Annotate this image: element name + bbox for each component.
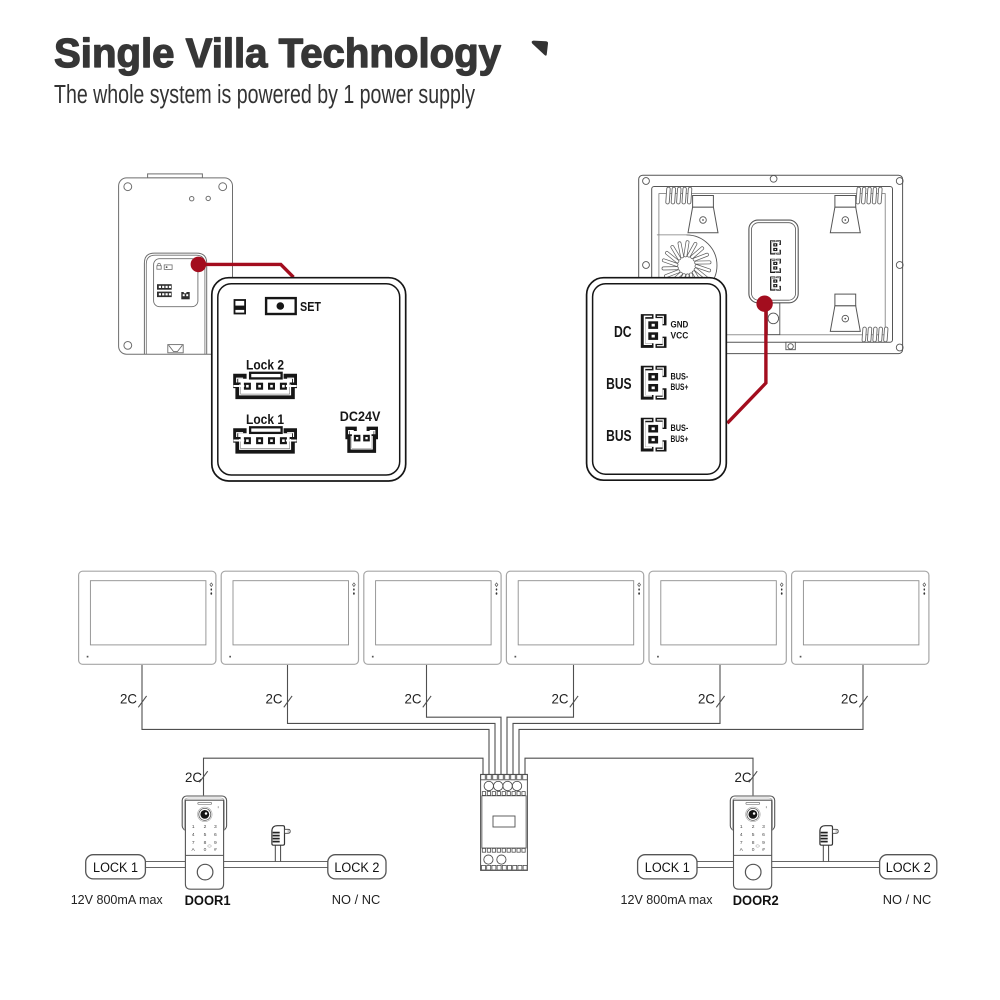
svg-text:The whole system is powered by: The whole system is powered by 1 power s… [54,81,475,109]
svg-text:VCC: VCC [671,331,689,341]
svg-text:BUS+: BUS+ [671,382,689,392]
svg-text:GND: GND [671,320,689,330]
svg-text:DOOR2: DOOR2 [733,893,779,908]
svg-text:BUS: BUS [606,428,632,445]
svg-text:Lock 1: Lock 1 [246,411,284,427]
svg-text:LOCK 1: LOCK 1 [93,860,138,875]
svg-text:2C: 2C [185,769,202,785]
svg-text:DOOR1: DOOR1 [185,893,231,908]
svg-text:12V 800mA max: 12V 800mA max [71,892,163,907]
svg-text:2C: 2C [405,691,422,707]
svg-text:NO / NC: NO / NC [332,892,381,907]
svg-text:2C: 2C [552,691,569,707]
svg-text:BUS+: BUS+ [671,434,689,444]
svg-text:12V 800mA max: 12V 800mA max [621,892,713,907]
svg-text:DC24V: DC24V [340,408,381,424]
svg-text:2C: 2C [735,769,752,785]
svg-text:2C: 2C [698,691,715,707]
svg-text:2C: 2C [120,691,137,707]
svg-text:2C: 2C [266,691,283,707]
svg-text:Lock 2: Lock 2 [246,357,284,373]
svg-text:SET: SET [300,300,321,314]
svg-text:Single Villa Technology: Single Villa Technology [54,30,501,76]
svg-text:LOCK 1: LOCK 1 [645,860,690,875]
svg-text:NO / NC: NO / NC [883,892,932,907]
svg-text:LOCK 2: LOCK 2 [886,860,931,875]
svg-text:2C: 2C [841,691,858,707]
svg-text:BUS-: BUS- [671,371,689,381]
svg-text:BUS-: BUS- [671,423,689,433]
svg-text:DC: DC [614,324,632,341]
svg-text:LOCK 2: LOCK 2 [334,860,379,875]
svg-text:BUS: BUS [606,376,632,393]
